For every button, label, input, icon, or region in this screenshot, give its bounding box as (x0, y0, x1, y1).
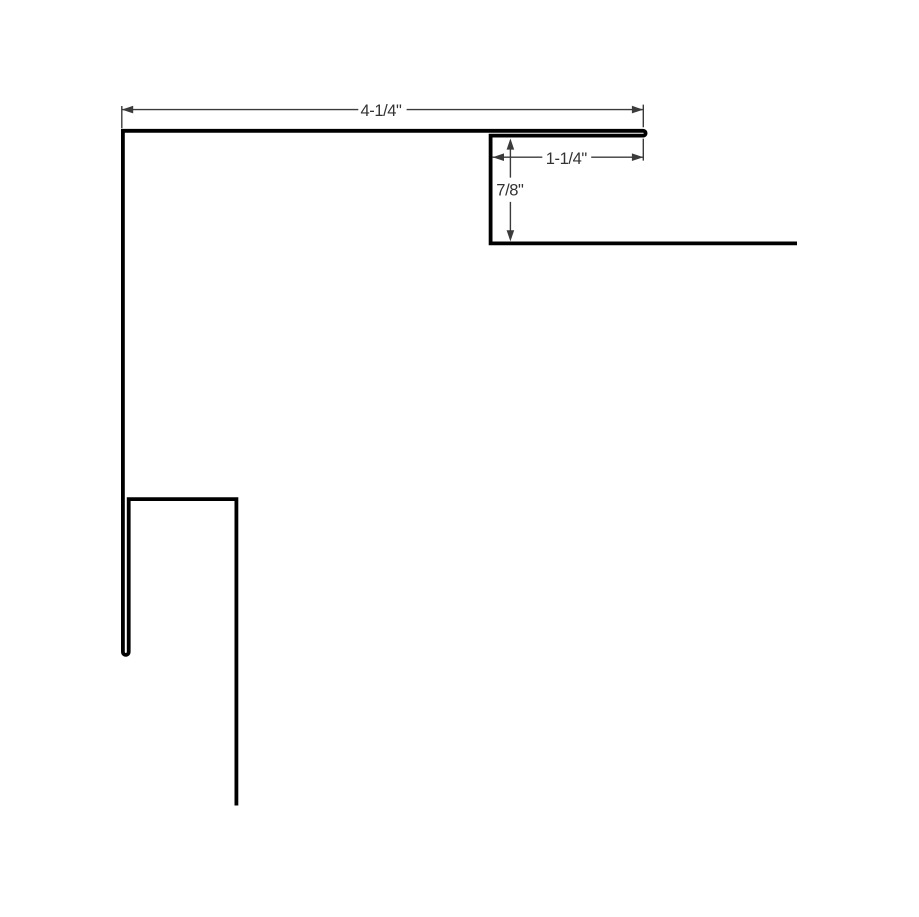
svg-text:4-1/4": 4-1/4" (360, 102, 402, 120)
svg-text:1-1/4": 1-1/4" (546, 150, 588, 168)
svg-text:7/8": 7/8" (496, 182, 524, 200)
